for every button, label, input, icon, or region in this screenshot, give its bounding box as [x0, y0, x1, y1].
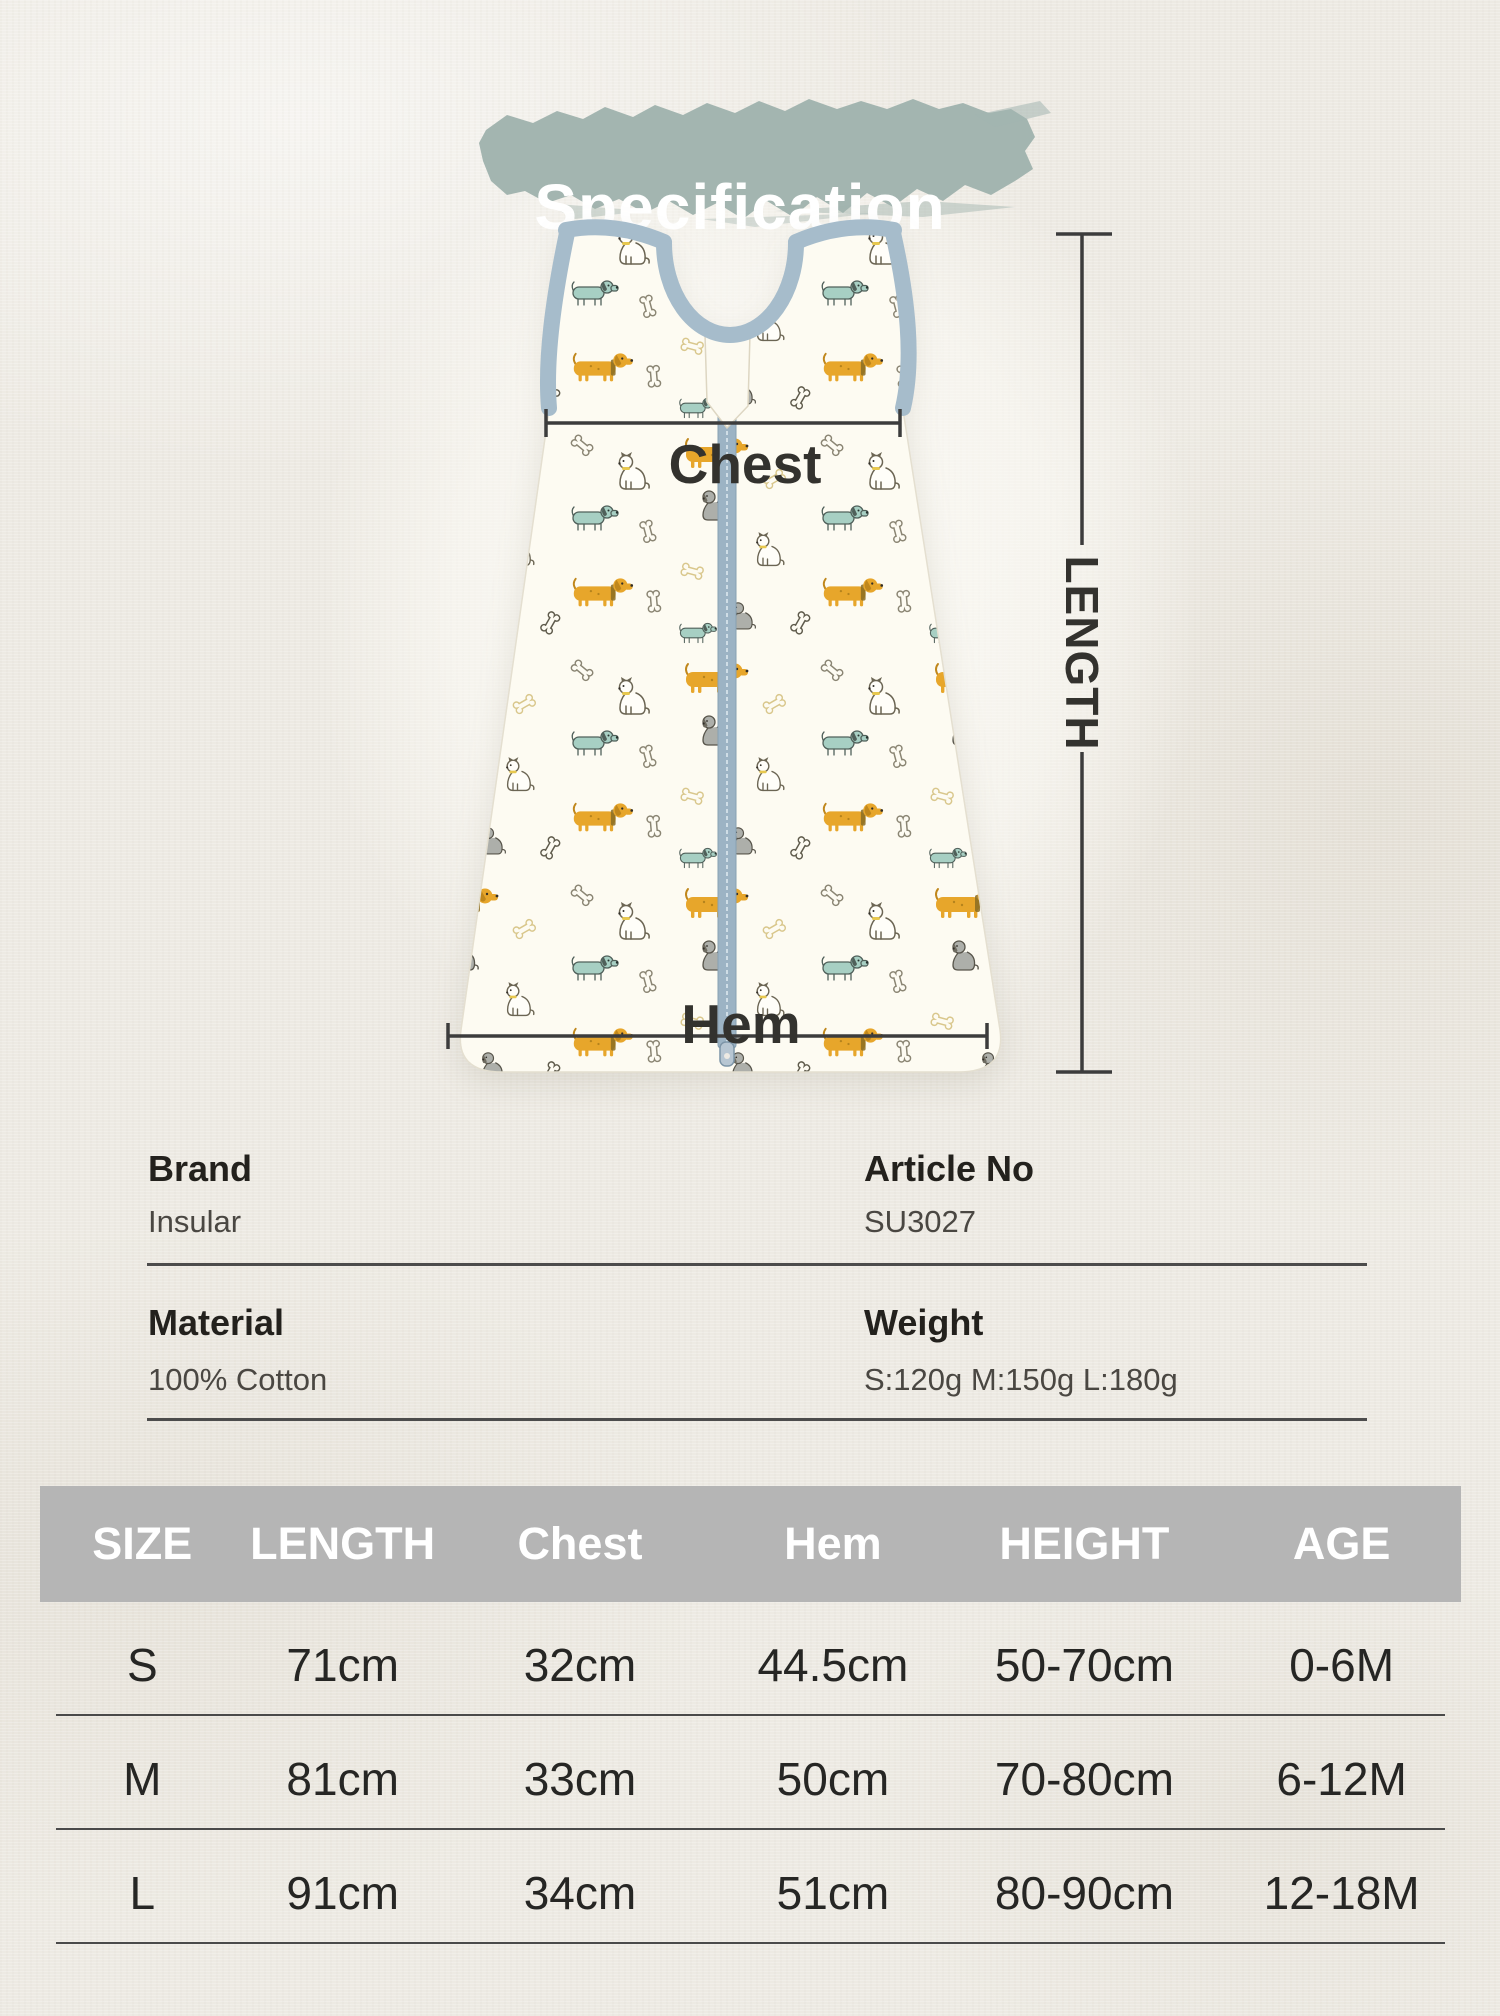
- cell-chest: 33cm: [441, 1738, 720, 1806]
- brand-label: Brand: [148, 1148, 864, 1190]
- size-table-header: SIZE LENGTH Chest Hem HEIGHT AGE: [40, 1486, 1461, 1602]
- cell-hem: 44.5cm: [719, 1624, 946, 1692]
- size-table: SIZE LENGTH Chest Hem HEIGHT AGE S 71cm …: [40, 1486, 1461, 1944]
- table-row-l: L 91cm 34cm 51cm 80-90cm 12-18M: [40, 1830, 1461, 1942]
- info-values-row: 100% Cotton S:120g M:150g L:180g: [148, 1362, 1368, 1398]
- divider: [147, 1418, 1367, 1421]
- cell-height: 80-90cm: [947, 1852, 1223, 1920]
- cell-age: 6-12M: [1222, 1738, 1461, 1806]
- cell-chest: 32cm: [441, 1624, 720, 1692]
- cell-age: 0-6M: [1222, 1624, 1461, 1692]
- length-measure-label: LENGTH: [1055, 555, 1109, 750]
- brand-value: Insular: [148, 1204, 864, 1240]
- header-age: AGE: [1222, 1518, 1461, 1570]
- garment-diagram: [380, 150, 1140, 1120]
- cell-size: L: [40, 1852, 245, 1920]
- cell-hem: 50cm: [719, 1738, 946, 1806]
- cell-size: M: [40, 1738, 245, 1806]
- hem-measure-label: Hem: [681, 992, 800, 1056]
- chest-measure-label: Chest: [669, 432, 822, 496]
- weight-value: S:120g M:150g L:180g: [864, 1362, 1368, 1398]
- cell-chest: 34cm: [441, 1852, 720, 1920]
- cell-height: 70-80cm: [947, 1738, 1223, 1806]
- header-hem: Hem: [719, 1518, 946, 1570]
- cell-age: 12-18M: [1222, 1852, 1461, 1920]
- material-label: Material: [148, 1302, 864, 1344]
- spec-sheet: Specification: [0, 0, 1500, 2016]
- header-chest: Chest: [441, 1518, 720, 1570]
- cell-length: 71cm: [245, 1624, 441, 1692]
- article-no-value: SU3027: [864, 1204, 1368, 1240]
- cell-length: 81cm: [245, 1738, 441, 1806]
- table-row-s: S 71cm 32cm 44.5cm 50-70cm 0-6M: [40, 1602, 1461, 1714]
- header-height: HEIGHT: [947, 1518, 1223, 1570]
- header-length: LENGTH: [245, 1518, 441, 1570]
- table-row-m: M 81cm 33cm 50cm 70-80cm 6-12M: [40, 1716, 1461, 1828]
- info-labels-row: Brand Article No: [148, 1148, 1368, 1190]
- article-no-label: Article No: [864, 1148, 1368, 1190]
- cell-hem: 51cm: [719, 1852, 946, 1920]
- neck-trim: [664, 243, 796, 335]
- material-value: 100% Cotton: [148, 1362, 864, 1398]
- cell-height: 50-70cm: [947, 1624, 1223, 1692]
- info-values-row: Insular SU3027: [148, 1204, 1368, 1240]
- info-labels-row: Material Weight: [148, 1302, 1368, 1344]
- cell-length: 91cm: [245, 1852, 441, 1920]
- weight-label: Weight: [864, 1302, 1368, 1344]
- row-divider: [56, 1942, 1445, 1944]
- header-size: SIZE: [40, 1518, 245, 1570]
- divider: [147, 1263, 1367, 1266]
- cell-size: S: [40, 1624, 245, 1692]
